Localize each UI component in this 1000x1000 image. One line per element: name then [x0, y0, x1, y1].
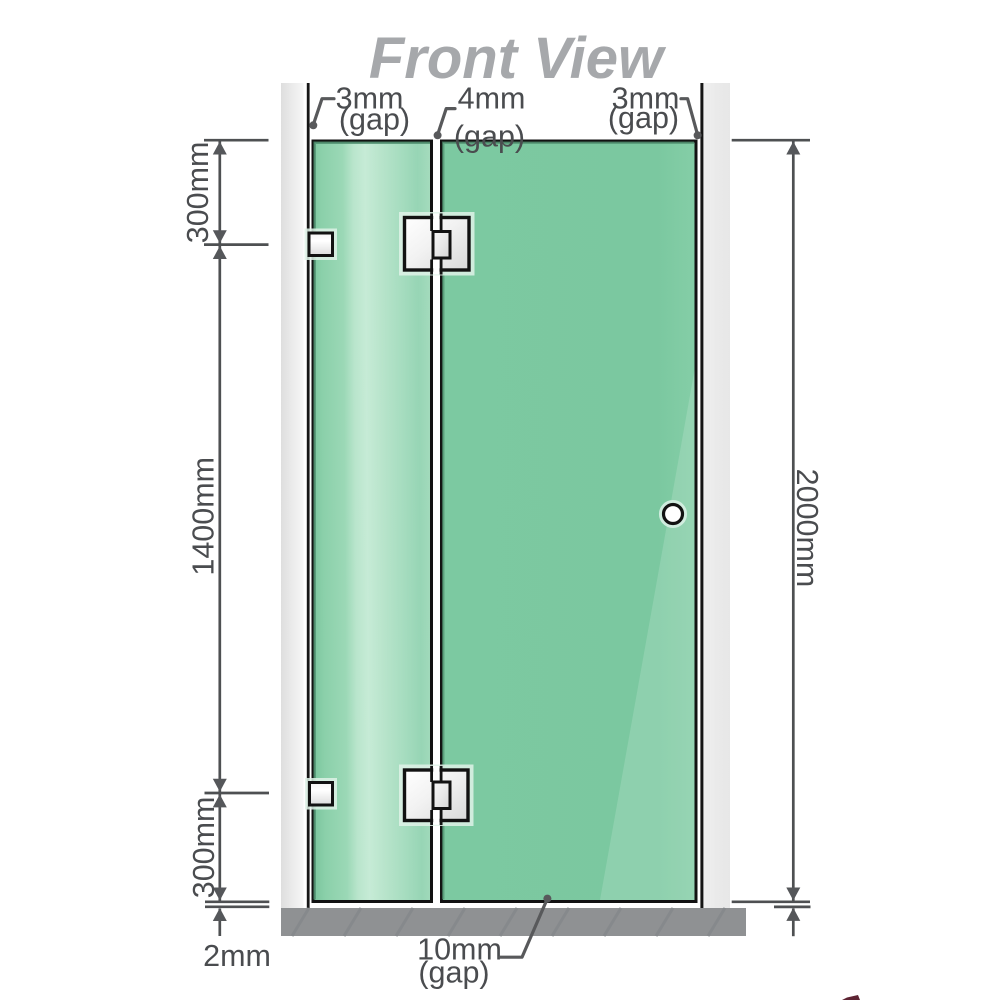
svg-text:2mm: 2mm — [203, 939, 271, 973]
svg-text:2000mm: 2000mm — [790, 469, 824, 588]
svg-text:(gap): (gap) — [608, 101, 679, 135]
svg-text:4mm: 4mm — [458, 82, 526, 116]
svg-text:(gap): (gap) — [418, 956, 489, 990]
svg-text:(gap): (gap) — [454, 120, 525, 154]
svg-text:300mm: 300mm — [187, 797, 221, 899]
svg-text:(gap): (gap) — [339, 103, 410, 137]
svg-text:1400mm: 1400mm — [187, 457, 221, 576]
svg-text:300mm: 300mm — [181, 142, 215, 244]
